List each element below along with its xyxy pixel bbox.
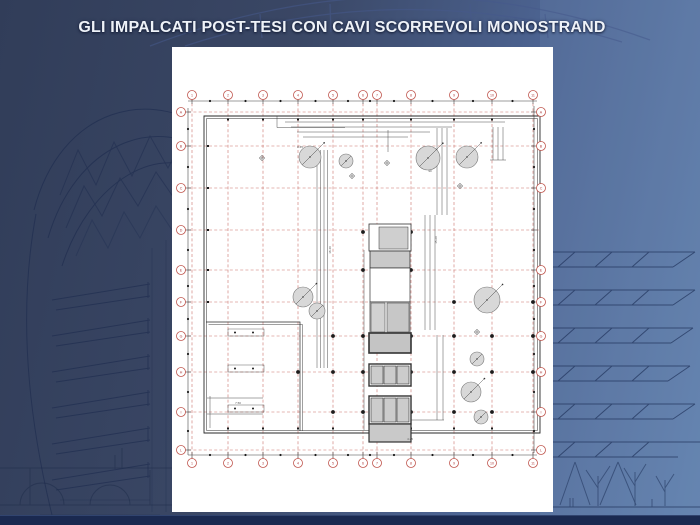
column-dot: [361, 410, 365, 414]
dot: [187, 285, 189, 287]
core-room: [387, 303, 409, 332]
grid-bubble-label: 8: [410, 461, 412, 465]
edge-column: [227, 119, 229, 121]
dot: [234, 332, 236, 334]
column-dot: [452, 300, 456, 304]
grid-bubble-label: 6: [362, 461, 364, 465]
grid-bubble-label: 1: [191, 461, 193, 465]
dot: [511, 454, 513, 456]
dot: [209, 100, 211, 102]
grid-bubble-label: 9: [453, 93, 455, 97]
dot: [314, 454, 316, 456]
core-room: [384, 366, 396, 384]
dot: [187, 391, 189, 393]
grid-bubble-label: H: [540, 370, 543, 374]
tiny-dim-label: 7.50: [235, 401, 241, 405]
dot: [252, 408, 254, 410]
grid-bubble-label: G: [540, 334, 543, 338]
edge-column: [207, 301, 209, 303]
core-room: [397, 398, 409, 422]
column-dot: [452, 334, 456, 338]
edge-column: [410, 119, 412, 121]
dot: [187, 208, 189, 210]
edge-column: [262, 119, 264, 121]
dot: [533, 318, 535, 320]
leader-dot: [480, 142, 482, 144]
dot: [369, 454, 371, 456]
grid-bubble-label: I: [181, 410, 182, 414]
dot: [279, 100, 281, 102]
dot: [314, 100, 316, 102]
core-room: [369, 333, 411, 353]
grid-bubble-label: 7: [376, 461, 378, 465]
grid-bubble-label: H: [180, 370, 183, 374]
column-dot: [452, 410, 456, 414]
edge-column: [207, 145, 209, 147]
column-dot: [531, 334, 535, 338]
edge-column: [207, 269, 209, 271]
dot: [369, 100, 371, 102]
grid-bubble-label: I: [541, 410, 542, 414]
dot: [393, 454, 395, 456]
dot: [393, 100, 395, 102]
bottom-left-sketch: [0, 448, 178, 505]
column-dot: [361, 334, 365, 338]
plan-drawing: 11223344556677889910101111ABCDEFGHILABCE…: [172, 47, 553, 512]
presentation-slide: GLI IMPALCATI POST-TESI CON CAVI SCORREV…: [0, 0, 700, 525]
edge-column: [207, 187, 209, 189]
edge-column: [227, 428, 229, 430]
column-dot: [361, 370, 365, 374]
edge-column: [362, 119, 364, 121]
column-center: [316, 310, 317, 311]
dot: [431, 454, 433, 456]
dot: [533, 166, 535, 168]
dot: [187, 353, 189, 355]
column-dot: [361, 230, 365, 234]
core-room: [371, 398, 383, 422]
slide-title: GLI IMPALCATI POST-TESI CON CAVI SCORREV…: [0, 19, 700, 37]
dot: [187, 128, 189, 130]
grid-bubble-label: C: [180, 186, 183, 190]
dot: [533, 353, 535, 355]
grid-bubble-label: 8: [410, 93, 412, 97]
dot: [252, 332, 254, 334]
column-center: [476, 358, 477, 359]
grid-bubble-label: 4: [297, 461, 299, 465]
grid-bubble-label: C: [540, 186, 543, 190]
core-room: [384, 398, 396, 422]
dot: [533, 430, 535, 432]
dot: [209, 454, 211, 456]
grid-bubble-label: 3: [262, 461, 264, 465]
grid-bubble-label: L: [540, 448, 542, 452]
column-dot: [296, 370, 300, 374]
column-dot: [531, 370, 535, 374]
beam-table: [228, 365, 264, 372]
edge-column: [297, 119, 299, 121]
dot: [533, 128, 535, 130]
grid-bubble-label: L: [180, 448, 182, 452]
core-room: [370, 268, 410, 302]
grid-bubble-label: 10: [490, 461, 494, 465]
tiny-dim-label: 8.45: [297, 145, 303, 149]
grid-bubble-label: 11: [531, 93, 535, 97]
beam-table: [228, 329, 264, 336]
dot: [533, 391, 535, 393]
grid-bubble-label: 9: [453, 461, 455, 465]
edge-column: [207, 229, 209, 231]
grid-bubble-label: 5: [332, 93, 334, 97]
leader-dot: [316, 283, 318, 285]
grid-bubble-label: 5: [332, 461, 334, 465]
edge-column: [297, 428, 299, 430]
tiny-dim-label: 90: [428, 169, 432, 173]
beam-table: [228, 405, 264, 412]
grid-bubble-label: 4: [297, 93, 299, 97]
leader-dot: [502, 284, 504, 286]
dot: [472, 100, 474, 102]
dot: [187, 318, 189, 320]
dot: [234, 368, 236, 370]
edge-column: [262, 428, 264, 430]
dot: [252, 368, 254, 370]
tiny-dim-label: 18.40: [328, 246, 332, 254]
grid-bubble-label: 10: [490, 93, 494, 97]
core: [369, 224, 411, 442]
column-dot: [531, 300, 535, 304]
grid-bubble-label: 2: [227, 461, 229, 465]
column-dot: [490, 370, 494, 374]
core-room: [369, 424, 411, 442]
grid-bubble-label: D: [180, 228, 183, 232]
dot: [244, 454, 246, 456]
dot: [472, 454, 474, 456]
dot: [431, 100, 433, 102]
tiny-dim-label: 15.20: [434, 236, 438, 244]
grid-bubble-label: G: [180, 334, 183, 338]
edge-column: [491, 119, 493, 121]
grid-bubble-label: 3: [262, 93, 264, 97]
core-room: [370, 251, 410, 268]
right-light-panel: [540, 0, 700, 516]
slab-outline: [209, 325, 303, 432]
core-room: [371, 303, 385, 332]
leader-dot: [323, 142, 325, 144]
edge-column: [453, 119, 455, 121]
slab-outline: [206, 322, 300, 431]
column-dot: [490, 334, 494, 338]
edge-column: [332, 428, 334, 430]
column-dot: [331, 334, 335, 338]
dot: [347, 454, 349, 456]
grid-lines: [183, 98, 539, 460]
grid-bubble-label: 7: [376, 93, 378, 97]
column-center: [345, 160, 346, 161]
bottom-accent-bar: [0, 515, 700, 525]
column-dot: [452, 370, 456, 374]
dot: [533, 208, 535, 210]
leader-dot: [484, 378, 486, 380]
grid-bubble-label: 1: [191, 93, 193, 97]
leader-dot: [442, 142, 444, 144]
column-dot: [331, 370, 335, 374]
edge-column: [332, 119, 334, 121]
grid-bubble-label: 2: [227, 93, 229, 97]
dot: [187, 166, 189, 168]
dot: [511, 100, 513, 102]
edge-column: [491, 428, 493, 430]
dot: [533, 249, 535, 251]
tiny-dim-label: 4.25: [407, 437, 413, 441]
edge-column: [453, 428, 455, 430]
column-dot: [490, 410, 494, 414]
dot: [187, 249, 189, 251]
core-room: [379, 227, 408, 249]
grid-bubble-label: 11: [531, 461, 535, 465]
core-room: [371, 366, 383, 384]
dot: [244, 100, 246, 102]
dot: [533, 285, 535, 287]
column-dot: [331, 410, 335, 414]
core-room: [397, 366, 409, 384]
dot: [187, 430, 189, 432]
dot: [234, 408, 236, 410]
column-center: [480, 416, 481, 417]
grid-bubble-label: 6: [362, 93, 364, 97]
column-dot: [361, 268, 365, 272]
plan-svg: 11223344556677889910101111ABCDEFGHILABCE…: [172, 47, 553, 512]
dot: [279, 454, 281, 456]
dot: [347, 100, 349, 102]
